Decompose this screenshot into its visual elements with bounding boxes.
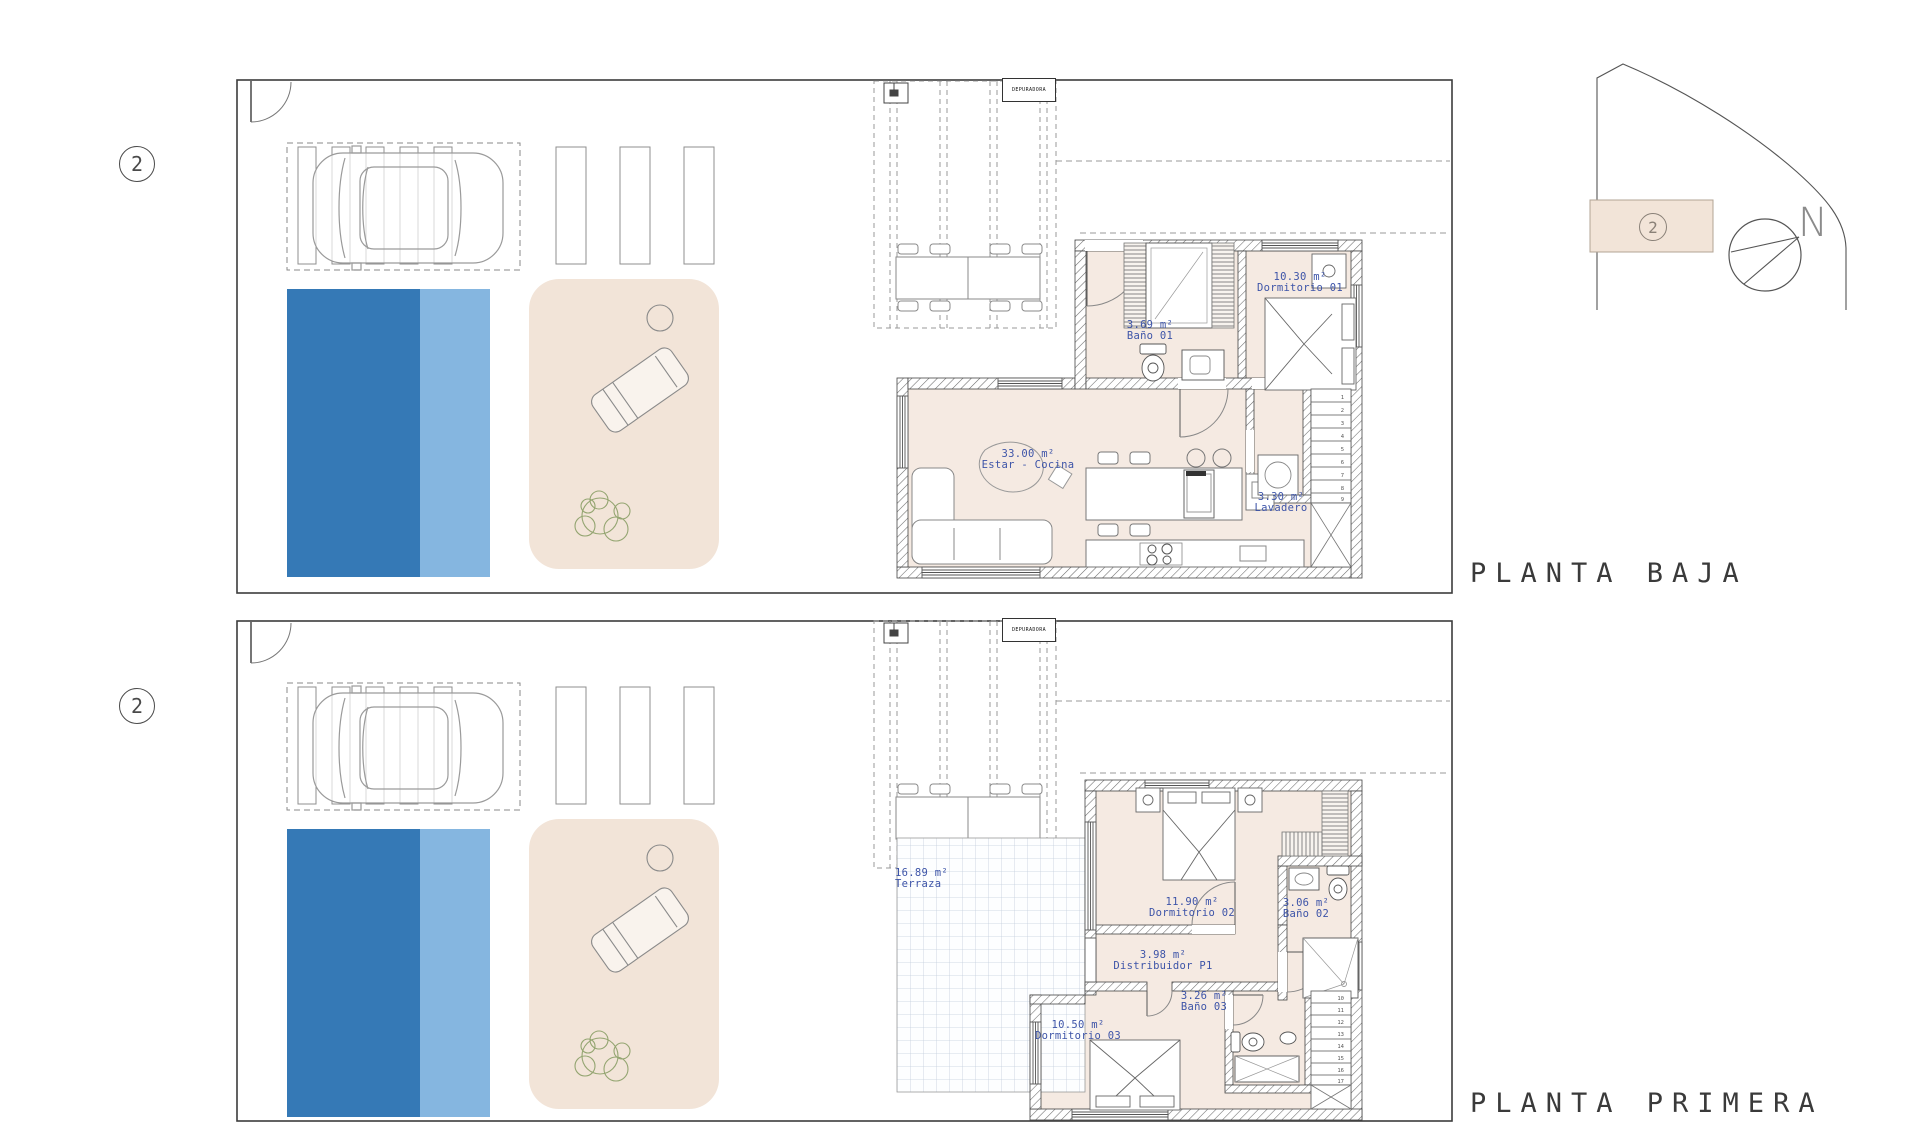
room-label-dormitorio-03: 10.50 m² Dormitorio 03	[1035, 1020, 1121, 1042]
plan-title-baja: PLANTA BAJA	[1470, 558, 1748, 589]
toilet-icon	[1231, 1032, 1264, 1052]
lavadero-door-opening	[1246, 430, 1254, 472]
room-name: Baño 01	[1127, 331, 1173, 342]
room-name: Dormitorio 03	[1035, 1031, 1121, 1042]
washer-icon	[1258, 455, 1298, 495]
room-label-lavadero: 3.30 m² Lavadero	[1255, 492, 1308, 514]
room-name: Baño 03	[1181, 1002, 1227, 1013]
room-name: Estar - Cocina	[982, 460, 1075, 471]
planta-baja-panel: 1 2 3 4 5 6 7 8 9	[237, 80, 1452, 593]
svg-text:17: 17	[1337, 1079, 1344, 1085]
shower-icon	[1146, 243, 1212, 328]
room-label-terraza: 16.89 m² Terraza	[895, 868, 948, 890]
plan-number-badge-primera: 2	[119, 688, 155, 724]
site-unit-number-badge: 2	[1639, 213, 1667, 241]
room-label-bano-01: 3.69 m² Baño 01	[1127, 320, 1173, 342]
toilet-icon	[1327, 866, 1349, 900]
stairs	[1311, 991, 1351, 1109]
wardrobe-icon	[1212, 243, 1234, 328]
sink-icon	[1289, 868, 1319, 890]
svg-text:12: 12	[1337, 1020, 1344, 1026]
svg-text:1: 1	[1341, 395, 1344, 401]
depuradora-box-baja: DEPURADORA	[1002, 78, 1056, 102]
svg-text:5: 5	[1341, 447, 1344, 453]
lavadero-room	[1258, 455, 1298, 495]
room-name: Baño 02	[1283, 909, 1329, 920]
room-label-bano-03: 3.26 m² Baño 03	[1181, 991, 1227, 1013]
compass-icon	[1729, 219, 1801, 291]
wardrobe-icon	[1124, 243, 1146, 328]
room-name: Dormitorio 01	[1257, 283, 1343, 294]
svg-text:3: 3	[1341, 421, 1344, 427]
room-name: Distribuidor P1	[1113, 961, 1212, 972]
svg-text:13: 13	[1337, 1032, 1344, 1038]
svg-text:2: 2	[1341, 408, 1344, 414]
wardrobe-icon	[1322, 791, 1348, 856]
room-name: Lavadero	[1255, 503, 1308, 514]
sink-icon	[1182, 350, 1224, 380]
site-key-plan	[1590, 64, 1846, 310]
room-label-distribuidor-p1: 3.98 m² Distribuidor P1	[1113, 950, 1212, 972]
north-label: N	[1798, 200, 1828, 246]
room-label-estar-cocina: 33.00 m² Estar - Cocina	[982, 449, 1075, 471]
svg-text:9: 9	[1341, 497, 1344, 503]
svg-text:11: 11	[1337, 1008, 1344, 1014]
stairs	[1311, 389, 1351, 567]
toilet-icon	[1140, 344, 1166, 381]
bed-icon	[1163, 788, 1235, 880]
svg-text:15: 15	[1337, 1056, 1344, 1062]
room-name: Terraza	[895, 879, 948, 890]
svg-text:16: 16	[1337, 1068, 1344, 1074]
svg-text:10: 10	[1337, 996, 1344, 1002]
planta-primera-panel: 10 11 12 13 14 15 16 17	[237, 621, 1452, 1121]
svg-text:6: 6	[1341, 460, 1344, 466]
plan-number-badge-baja: 2	[119, 146, 155, 182]
bed-icon	[1265, 298, 1356, 390]
bedroom-03	[1090, 1040, 1180, 1110]
sink-icon	[1280, 1032, 1296, 1044]
gate-icon	[251, 622, 291, 663]
depuradora-box-primera: DEPURADORA	[1002, 618, 1056, 642]
kitchen-counter	[1086, 540, 1304, 567]
plan-title-primera: PLANTA PRIMERA	[1470, 1088, 1824, 1119]
site-boundary	[1597, 64, 1846, 310]
shower-icon	[1235, 1056, 1299, 1082]
room-label-dormitorio-01: 10.30 m² Dormitorio 01	[1257, 272, 1343, 294]
shower-icon	[1303, 938, 1358, 998]
svg-text:8: 8	[1341, 486, 1344, 492]
wardrobe-icon	[1282, 832, 1322, 856]
room-name: Dormitorio 02	[1149, 908, 1235, 919]
room-label-dormitorio-02: 11.90 m² Dormitorio 02	[1149, 897, 1235, 919]
bed-icon	[1090, 1040, 1180, 1110]
svg-text:14: 14	[1337, 1044, 1344, 1050]
north-arrow-icon	[1731, 237, 1799, 284]
gate-icon	[251, 81, 291, 122]
room-label-bano-02: 3.06 m² Baño 02	[1283, 898, 1329, 920]
svg-text:7: 7	[1341, 473, 1344, 479]
